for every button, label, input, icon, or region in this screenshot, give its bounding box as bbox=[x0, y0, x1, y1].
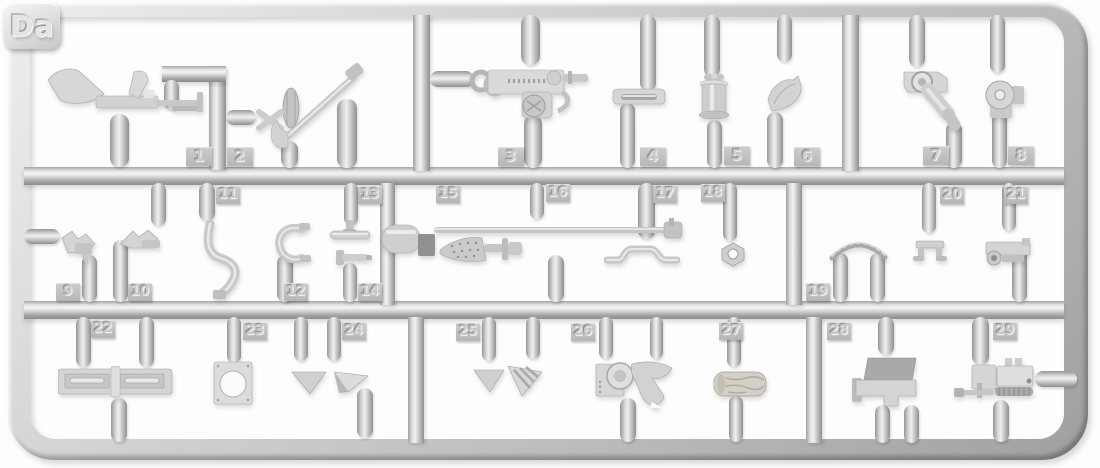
part-number-tag: 29 bbox=[993, 322, 1017, 340]
part-18-hex-nut-washer bbox=[718, 240, 748, 268]
part-number-tag: 23 bbox=[243, 322, 267, 340]
part-number-tag: 2 bbox=[227, 147, 253, 166]
gate-stub bbox=[599, 317, 613, 359]
part-number-tag: 9 bbox=[56, 283, 80, 301]
part-number-tag: 14 bbox=[358, 283, 382, 301]
part-26-gun-shield bbox=[592, 356, 678, 410]
part-number-tag: 5 bbox=[724, 146, 750, 165]
gate-stub bbox=[650, 317, 663, 359]
sprue-photo: 1 2 3 4 5 6 7 8 9 10 11 12 13 14 15 16 1… bbox=[0, 0, 1100, 468]
part-4-mounting-bracket-plate bbox=[612, 86, 668, 108]
gate-stub bbox=[904, 405, 919, 443]
runner-divider bbox=[842, 15, 859, 171]
gate-stub bbox=[729, 396, 743, 442]
gate-stub bbox=[139, 317, 154, 367]
part-14-t-pin bbox=[334, 246, 374, 268]
part-number-tag: 19 bbox=[806, 283, 830, 301]
sprue-rail-upper bbox=[24, 167, 1064, 185]
gate-stub bbox=[111, 398, 127, 442]
part-number-tag: 17 bbox=[653, 185, 677, 203]
part-24-triangular-gussets bbox=[288, 368, 374, 414]
part-22-louvered-vent-plate bbox=[58, 366, 176, 398]
part-number-tag: 7 bbox=[923, 146, 949, 165]
gate-stub bbox=[524, 115, 542, 168]
part-number-tag: 20 bbox=[940, 186, 964, 204]
gate-stub bbox=[875, 405, 890, 443]
part-number-tag: 25 bbox=[456, 323, 480, 341]
part-number-tag: 8 bbox=[1008, 146, 1034, 165]
part-number-tag: 24 bbox=[342, 322, 366, 340]
gate-stub bbox=[767, 112, 783, 168]
part-20-u-shaped-clamp bbox=[912, 238, 948, 264]
part-3-heavy-machine-gun-receiver bbox=[450, 58, 590, 122]
gate-stub bbox=[620, 103, 635, 168]
gate-stub bbox=[294, 317, 308, 361]
gate-stub bbox=[227, 317, 241, 363]
part-2-aa-gun-mount bbox=[243, 62, 373, 168]
gate-stub bbox=[990, 15, 1005, 73]
part-number-tag: 1 bbox=[186, 147, 212, 166]
part-17-tow-bar bbox=[604, 238, 680, 266]
part-21-periscope-box bbox=[982, 234, 1036, 268]
part-8-round-knob-mount bbox=[982, 76, 1026, 120]
part-number-tag: 12 bbox=[284, 283, 308, 301]
part-19-chain-links bbox=[828, 232, 890, 262]
part-16-finned-cone-adapter bbox=[436, 232, 528, 268]
gate-stub bbox=[327, 317, 341, 361]
gate-stub bbox=[76, 317, 91, 367]
part-number-tag: 11 bbox=[216, 186, 240, 204]
part-number-tag: 28 bbox=[827, 322, 851, 340]
part-number-tag: 4 bbox=[640, 147, 666, 166]
part-13-t-handle bbox=[328, 218, 372, 242]
runner-divider bbox=[408, 317, 424, 443]
part-5-small-drum-canister bbox=[696, 72, 732, 126]
gate-stub bbox=[151, 183, 166, 226]
part-number-tag: 16 bbox=[546, 184, 570, 202]
part-number-tag: 10 bbox=[128, 283, 152, 301]
part-10-fork-bracket bbox=[112, 226, 168, 258]
part-number-tag: 13 bbox=[358, 186, 382, 204]
part-6-curved-bracket bbox=[762, 74, 804, 114]
runner-divider bbox=[806, 317, 822, 443]
part-number-tag: 3 bbox=[498, 147, 524, 166]
gate-stub bbox=[343, 263, 357, 302]
gate-stub bbox=[909, 15, 925, 67]
runner-divider bbox=[413, 15, 430, 171]
sprue-rail-lower bbox=[24, 301, 1064, 319]
part-7-swing-arm-mount bbox=[898, 64, 966, 132]
part-25-triangular-gussets bbox=[468, 364, 550, 404]
part-number-tag: 18 bbox=[701, 184, 725, 202]
gate-stub bbox=[199, 183, 215, 221]
part-28-stepped-bracket-assembly bbox=[852, 352, 924, 410]
part-1-light-machine-gun bbox=[44, 64, 208, 120]
gate-stub bbox=[993, 400, 1009, 442]
runner-divider bbox=[786, 183, 802, 305]
part-number-tag: 15 bbox=[436, 185, 460, 203]
part-9-clamp-bracket bbox=[56, 226, 102, 266]
part-number-tag: 21 bbox=[1004, 186, 1028, 204]
gate-stub bbox=[530, 183, 544, 219]
gate-stub bbox=[640, 15, 656, 91]
gate-stub bbox=[24, 229, 60, 244]
sprue-label-tab: Da bbox=[3, 3, 60, 49]
gate-stub bbox=[482, 317, 496, 361]
gate-stub bbox=[777, 15, 792, 62]
part-12-c-shaped-hook bbox=[272, 222, 316, 268]
gate-stub bbox=[878, 317, 894, 355]
part-29-machine-gun-with-mount bbox=[940, 354, 1040, 404]
part-number-tag: 6 bbox=[794, 147, 820, 166]
gate-stub bbox=[1035, 371, 1077, 387]
part-number-tag: 26 bbox=[571, 323, 595, 341]
gate-stub bbox=[922, 183, 936, 233]
part-number-tag: 27 bbox=[719, 322, 743, 340]
part-23-square-plate-with-hole bbox=[212, 360, 254, 406]
part-11-curved-hose bbox=[196, 220, 250, 300]
gate-stub bbox=[723, 183, 737, 241]
gate-stub bbox=[548, 255, 564, 302]
gate-stub bbox=[526, 317, 540, 359]
gate-stub bbox=[707, 120, 722, 168]
gate-stub bbox=[110, 114, 129, 167]
gate-stub bbox=[704, 15, 720, 77]
gate-stub bbox=[992, 112, 1007, 168]
part-number-tag: 22 bbox=[91, 320, 115, 338]
part-27-wooden-log bbox=[712, 368, 768, 400]
